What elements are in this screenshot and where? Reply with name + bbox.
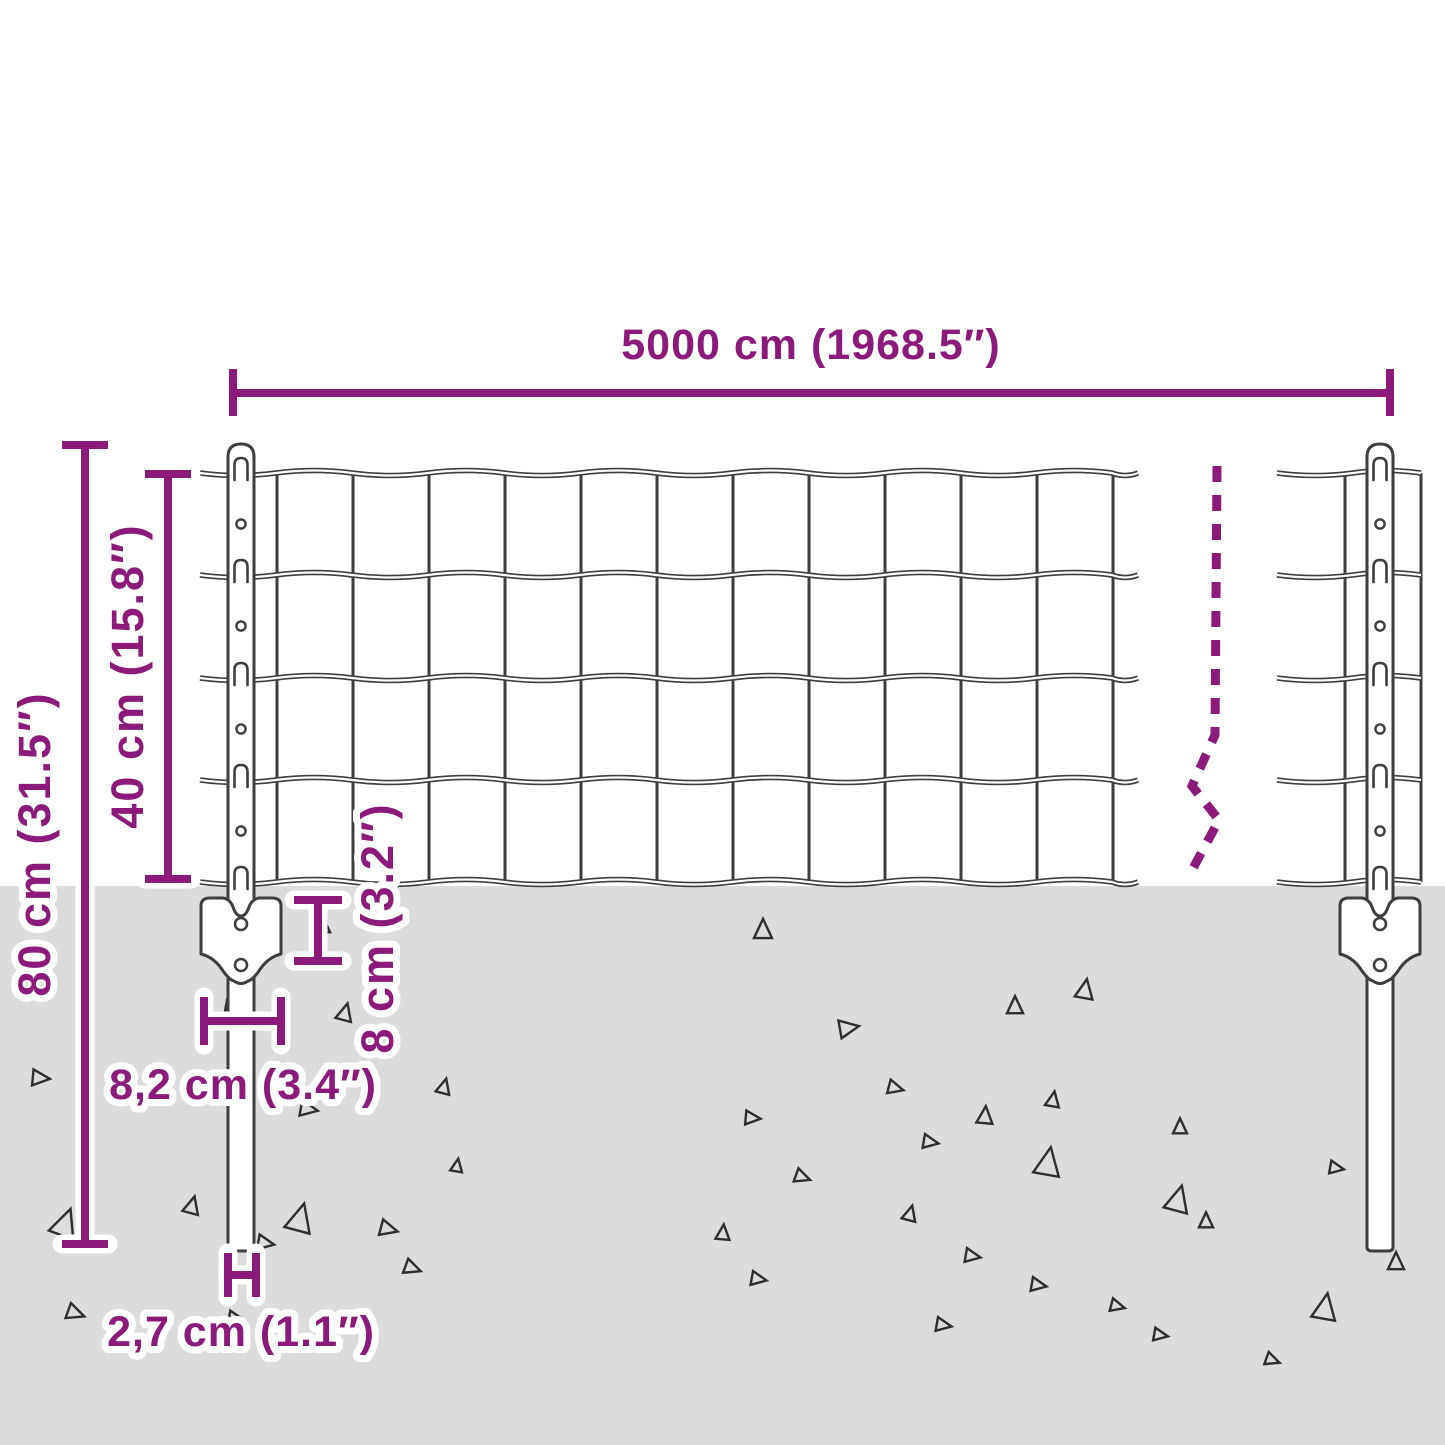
bracket-hole xyxy=(1374,959,1386,971)
post-hole xyxy=(236,621,245,630)
bracket-hole xyxy=(235,959,247,971)
post-hole xyxy=(236,519,245,528)
dim-label-post-diameter: 2,7 cm (1.1″) xyxy=(107,1308,375,1356)
post-hole xyxy=(1375,519,1384,528)
dim-label-post-height: 80 cm (31.5″) xyxy=(9,691,60,996)
fence-dimension-diagram: 5000 cm (1968.5″) 80 cm (31.5″) 40 cm (1… xyxy=(0,0,1445,1445)
wire-hook xyxy=(1374,867,1387,889)
wire-hook xyxy=(1374,765,1387,787)
dim-total-length xyxy=(233,369,1390,416)
post-hole xyxy=(236,724,245,733)
post-hole xyxy=(1375,621,1384,630)
break-line-dashed xyxy=(1191,466,1219,872)
dim-label-total-length: 5000 cm (1968.5″) xyxy=(621,321,1000,369)
wire-hook xyxy=(235,867,248,889)
dim-label-anchor-depth: 8 cm (3.2″) xyxy=(352,802,403,1053)
dim-label-anchor-width: 8,2 cm (3.4″) xyxy=(109,1061,377,1109)
post-hole xyxy=(1375,724,1384,733)
post-hole xyxy=(236,826,245,835)
ground-area xyxy=(0,886,1445,1445)
diagram-canvas: 5000 cm (1968.5″) 80 cm (31.5″) 40 cm (1… xyxy=(0,0,1445,1445)
wire-hook xyxy=(235,765,248,787)
bracket-hole xyxy=(1374,918,1386,930)
wire-hook xyxy=(1374,458,1387,480)
dim-label-mesh-height: 40 cm (15.8″) xyxy=(102,523,153,828)
bracket-hole xyxy=(235,918,247,930)
post-hole xyxy=(1375,826,1384,835)
wire-hook xyxy=(1374,560,1387,582)
wire-hook xyxy=(235,663,248,685)
wire-hook xyxy=(235,560,248,582)
wire-hook xyxy=(1374,663,1387,685)
wire-hook xyxy=(235,458,248,480)
